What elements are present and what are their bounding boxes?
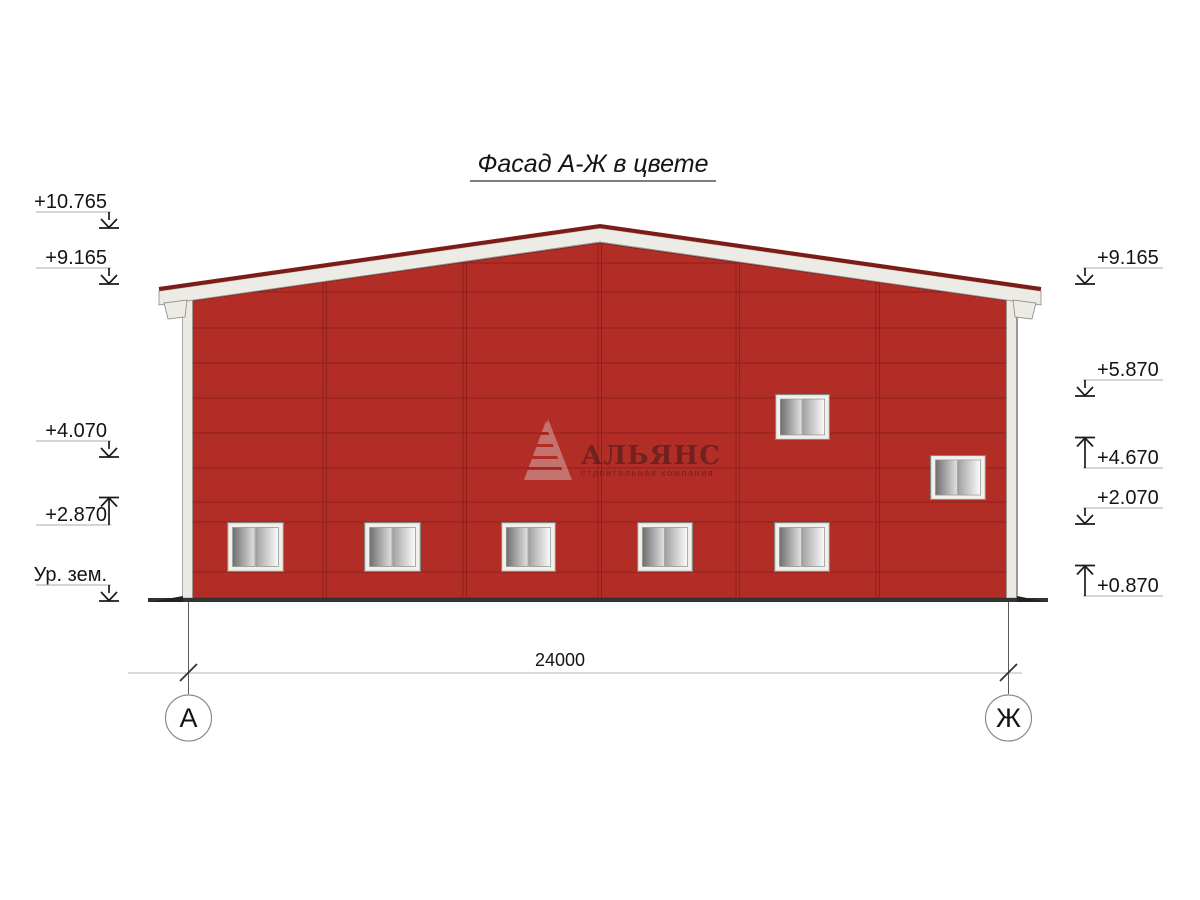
watermark-company-name: АЛЬЯНС: [581, 441, 721, 471]
axis-label-zh: Ж: [996, 703, 1021, 733]
elevation-label: +4.670: [1097, 447, 1159, 469]
elevation-arrow-down-icon: [99, 212, 119, 228]
elevation-mark: +5.870: [1075, 359, 1163, 396]
elevation-label: +2.070: [1097, 487, 1159, 509]
drawing-canvas: Фасад А-Ж в цвете +10.765 +9.165 +4.070: [0, 0, 1200, 900]
gutter-endcap-right: [1013, 300, 1036, 319]
elevation-arrow-down-icon: [99, 441, 119, 457]
window: [365, 523, 421, 572]
elevation-label: +10.765: [34, 191, 107, 213]
elevation-arrow-up-icon: [1075, 566, 1095, 597]
elevation-mark: Ур. зем.: [34, 564, 119, 601]
corner-trim-left: [183, 300, 193, 598]
axis-label-a: А: [179, 703, 197, 733]
elevation-label: +5.870: [1097, 359, 1159, 381]
page-title: Фасад А-Ж в цвете: [478, 150, 709, 178]
elevation-label: +4.070: [45, 420, 107, 442]
elevation-mark: +2.870: [36, 498, 119, 527]
window: [931, 456, 986, 500]
elevation-mark: +9.165: [1075, 247, 1163, 284]
elevation-label: +2.870: [45, 504, 107, 526]
corner-trim-right: [1007, 300, 1017, 598]
elevation-mark: +0.870: [1075, 566, 1163, 598]
elevation-mark: +4.670: [1075, 438, 1163, 470]
elevation-label: +9.165: [45, 247, 107, 269]
elevation-mark: +10.765: [34, 191, 119, 228]
dimension-block: 24000 А Ж: [128, 602, 1032, 741]
elevation-mark: +2.070: [1075, 487, 1163, 524]
elevation-arrow-down-icon: [99, 268, 119, 284]
window: [502, 523, 556, 572]
watermark-tagline: строительная компания: [581, 468, 714, 478]
elevation-mark: +4.070: [36, 420, 119, 457]
elevation-marks-left: +10.765 +9.165 +4.070 +2.870: [34, 191, 119, 601]
elevation-mark: +9.165: [36, 247, 119, 284]
title-block: Фасад А-Ж в цвете: [470, 150, 716, 181]
elevation-label: Ур. зем.: [34, 564, 107, 586]
building-facade: АЛЬЯНС строительная компания: [148, 226, 1048, 602]
dimension-value: 24000: [535, 650, 585, 670]
elevation-arrow-down-icon: [99, 585, 119, 601]
elevation-arrow-down-icon: [1075, 268, 1095, 284]
elevation-marks-right: +9.165 +5.870 +4.670 +2.070: [1075, 247, 1163, 597]
elevation-arrow-up-icon: [1075, 438, 1095, 469]
elevation-label: +9.165: [1097, 247, 1159, 269]
window: [775, 523, 830, 572]
facade-wall: [183, 243, 1017, 598]
window: [638, 523, 693, 572]
elevation-arrow-down-icon: [1075, 380, 1095, 396]
elevation-label: +0.870: [1097, 575, 1159, 597]
elevation-arrow-down-icon: [1075, 508, 1095, 524]
facade-drawing: Фасад А-Ж в цвете +10.765 +9.165 +4.070: [0, 0, 1200, 900]
window: [228, 523, 284, 572]
window: [776, 395, 830, 440]
gutter-endcap-left: [164, 300, 187, 319]
